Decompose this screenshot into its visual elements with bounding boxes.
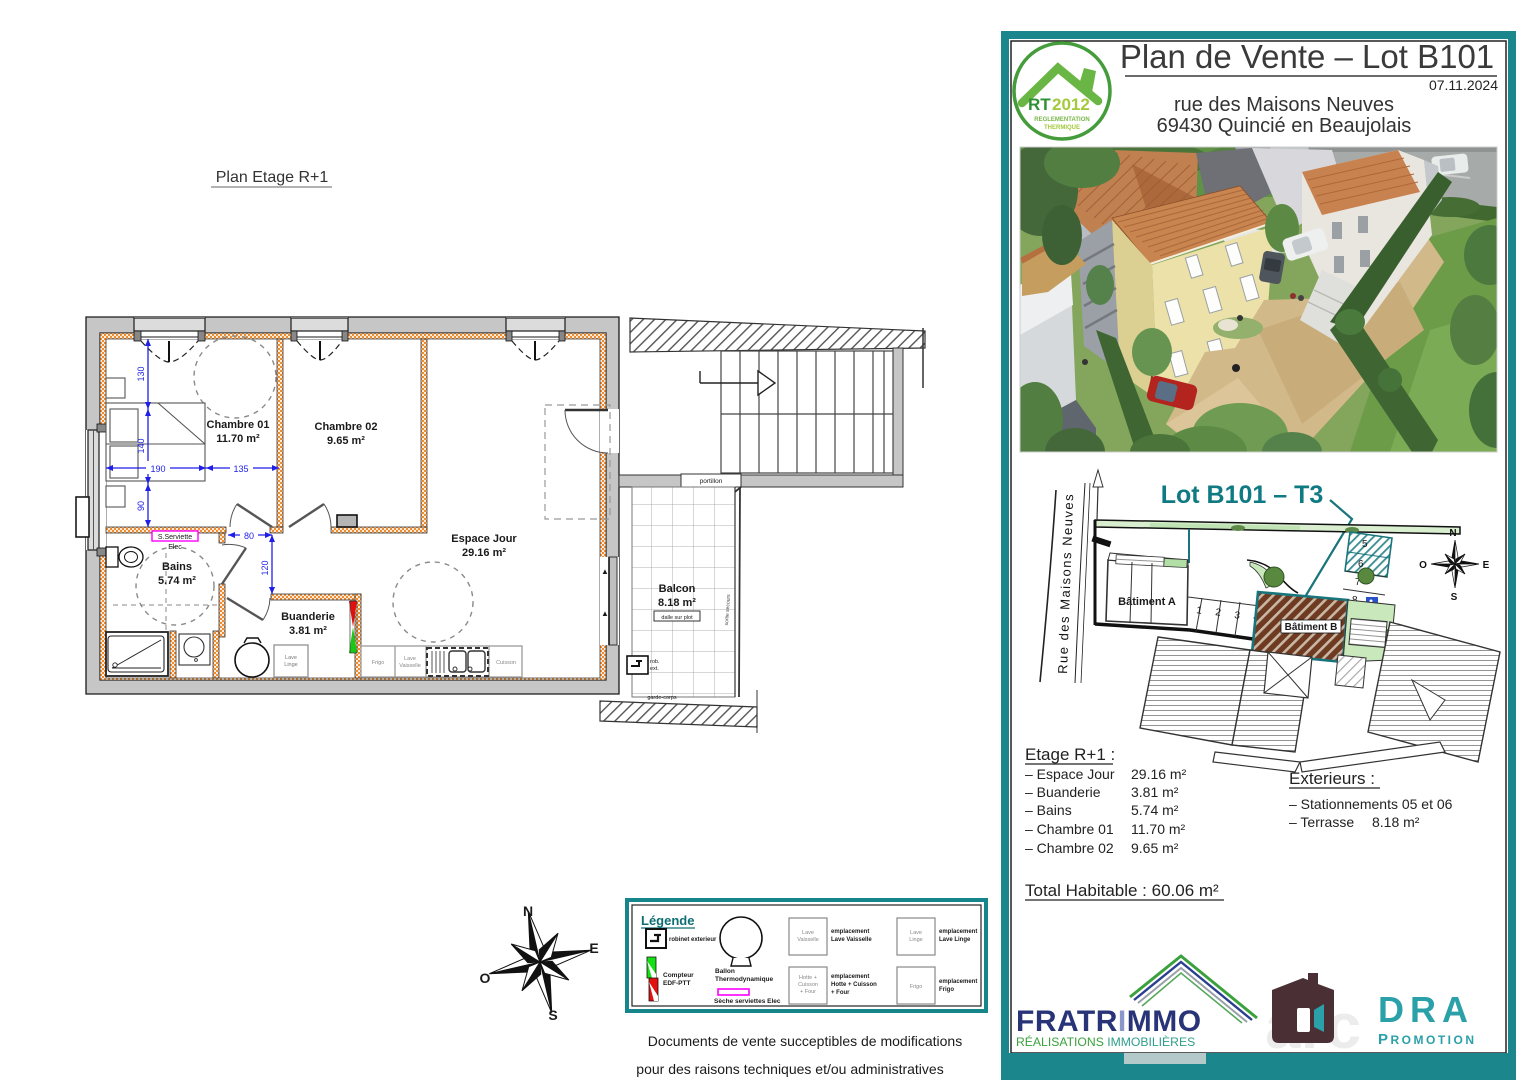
svg-text:29.16 m²: 29.16 m² [462, 547, 506, 559]
svg-text:dalle sur plot: dalle sur plot [661, 615, 693, 621]
svg-text:REGLEMENTATION: REGLEMENTATION [1034, 117, 1089, 123]
svg-text:Sèche serviettes Elec: Sèche serviettes Elec [714, 998, 781, 1005]
svg-text:+ Four: + Four [831, 990, 850, 996]
svg-text:Vaisselle: Vaisselle [399, 663, 421, 669]
svg-text:E: E [1483, 560, 1490, 571]
svg-text:– Stationnements 05 et 06: – Stationnements 05 et 06 [1289, 796, 1453, 812]
svg-text:135: 135 [233, 464, 248, 474]
svg-text:S.Serviette: S.Serviette [158, 534, 192, 541]
svg-text:RÉALISATIONS IMMOBILIÈRES: RÉALISATIONS IMMOBILIÈRES [1016, 1034, 1195, 1049]
svg-text:garde-corps: garde-corps [647, 695, 677, 701]
svg-text:120: 120 [260, 560, 270, 575]
svg-text:Cuisson: Cuisson [798, 982, 818, 988]
svg-text:Exterieurs :: Exterieurs : [1289, 769, 1375, 788]
svg-text:5.74 m²: 5.74 m² [158, 575, 196, 587]
svg-text:FRATRIMMO: FRATRIMMO [1016, 1005, 1202, 1038]
svg-text:Bains: Bains [162, 561, 192, 573]
svg-text:Balcon: Balcon [659, 583, 696, 595]
svg-text:EDF-PTT: EDF-PTT [663, 980, 690, 987]
svg-text:emplacement: emplacement [939, 979, 977, 985]
svg-text:Linge: Linge [284, 662, 297, 668]
svg-text:Hotte +: Hotte + [799, 975, 817, 981]
svg-text:2012: 2012 [1052, 95, 1090, 114]
svg-text:Plan de Vente – Lot B101: Plan de Vente – Lot B101 [1120, 38, 1494, 75]
svg-text:S: S [548, 1007, 557, 1023]
svg-text:emplacement: emplacement [831, 974, 869, 980]
svg-text:07.11.2024: 07.11.2024 [1429, 77, 1498, 93]
svg-text:Frigo: Frigo [372, 660, 385, 666]
svg-text:9.65 m²: 9.65 m² [327, 435, 365, 447]
svg-text:130: 130 [136, 366, 146, 381]
svg-text:Etage R+1 :: Etage R+1 : [1025, 745, 1115, 764]
svg-text:– Chambre 01: – Chambre 01 [1025, 821, 1114, 837]
svg-text:▲: ▲ [601, 609, 609, 618]
svg-text:O: O [1419, 560, 1427, 571]
svg-text:– Bains: – Bains [1025, 802, 1072, 818]
svg-text:Lave Linge: Lave Linge [939, 937, 971, 943]
svg-text:Lave Vaisselle: Lave Vaisselle [831, 937, 872, 943]
svg-text:Hotte + Cuisson: Hotte + Cuisson [831, 982, 877, 988]
svg-text:+ Four: + Four [800, 989, 816, 995]
svg-text:3.81 m²: 3.81 m² [1131, 784, 1179, 800]
svg-text:9.65 m²: 9.65 m² [1131, 840, 1179, 856]
svg-text:Total Habitable : 60.06 m²: Total Habitable : 60.06 m² [1025, 881, 1219, 900]
svg-text:– Buanderie: – Buanderie [1025, 784, 1101, 800]
svg-text:THERMIQUE: THERMIQUE [1044, 125, 1080, 131]
svg-text:140: 140 [136, 438, 146, 453]
svg-text:8.18 m²: 8.18 m² [658, 597, 696, 609]
svg-text:Documents de vente succeptible: Documents de vente succeptibles de modif… [648, 1033, 962, 1049]
svg-text:S: S [1451, 592, 1458, 603]
svg-text:29.16 m²: 29.16 m² [1131, 766, 1187, 782]
svg-text:O: O [480, 970, 491, 986]
svg-text:▲: ▲ [601, 567, 609, 576]
svg-text:emplacement: emplacement [939, 929, 977, 935]
svg-text:Frigo: Frigo [910, 984, 923, 990]
svg-text:5: 5 [1362, 539, 1368, 550]
svg-text:N: N [1449, 528, 1456, 539]
svg-text:11.70 m²: 11.70 m² [216, 433, 260, 445]
svg-text:E: E [589, 940, 598, 956]
svg-text:Espace Jour: Espace Jour [451, 533, 517, 545]
svg-text:rob.: rob. [650, 659, 660, 665]
svg-text:Buanderie: Buanderie [281, 611, 335, 623]
svg-text:Frigo: Frigo [939, 987, 954, 993]
svg-text:Vaisselle: Vaisselle [797, 937, 819, 943]
svg-text:Chambre 01: Chambre 01 [207, 419, 270, 431]
svg-text:Ballon: Ballon [715, 968, 735, 975]
svg-text:Plan Etage R+1: Plan Etage R+1 [216, 169, 329, 186]
svg-text:ext.: ext. [650, 666, 659, 672]
svg-text:– Espace Jour: – Espace Jour [1025, 766, 1115, 782]
svg-text:80: 80 [244, 531, 254, 541]
svg-text:PROMOTION: PROMOTION [1378, 1031, 1477, 1048]
svg-text:Bâtiment B: Bâtiment B [1285, 622, 1338, 633]
svg-text:90: 90 [136, 501, 146, 511]
svg-text:Elec: Elec [168, 544, 182, 551]
svg-text:pour des raisons techniques et: pour des raisons techniques et/ou admini… [636, 1061, 943, 1077]
svg-text:Linge: Linge [909, 937, 922, 943]
svg-text:N: N [523, 903, 533, 919]
svg-text:Lave: Lave [802, 930, 814, 936]
svg-text:5.74 m²: 5.74 m² [1131, 802, 1179, 818]
svg-text:Bâtiment A: Bâtiment A [1118, 596, 1176, 608]
svg-text:emplacement: emplacement [831, 929, 869, 935]
svg-text:3.81 m²: 3.81 m² [289, 625, 327, 637]
svg-text:69430 Quincié en Beaujolais: 69430 Quincié en Beaujolais [1157, 115, 1412, 137]
svg-text:11.70 m²: 11.70 m² [1131, 821, 1186, 837]
svg-text:Légende: Légende [641, 913, 694, 928]
svg-text:rue des Maisons Neuves: rue des Maisons Neuves [1174, 94, 1394, 116]
svg-text:8.18 m²: 8.18 m² [1372, 814, 1420, 830]
svg-text:robinet exterieur: robinet exterieur [669, 937, 717, 943]
svg-text:Chambre 02: Chambre 02 [315, 421, 378, 433]
svg-text:Lave: Lave [404, 656, 416, 662]
svg-text:Compteur: Compteur [663, 972, 694, 979]
svg-text:RT: RT [1028, 95, 1051, 114]
svg-text:– Terrasse: – Terrasse [1289, 814, 1354, 830]
svg-text:– Chambre 02: – Chambre 02 [1025, 840, 1114, 856]
svg-text:Thermodynamique: Thermodynamique [715, 976, 774, 983]
svg-text:Lave: Lave [285, 655, 297, 661]
svg-text:DRA: DRA [1378, 989, 1474, 1030]
svg-text:Lot B101 – T3: Lot B101 – T3 [1161, 481, 1324, 509]
svg-text:Lave: Lave [910, 930, 922, 936]
svg-text:190: 190 [150, 464, 165, 474]
svg-text:portillon: portillon [700, 478, 723, 485]
svg-text:Cuisson: Cuisson [496, 660, 516, 666]
